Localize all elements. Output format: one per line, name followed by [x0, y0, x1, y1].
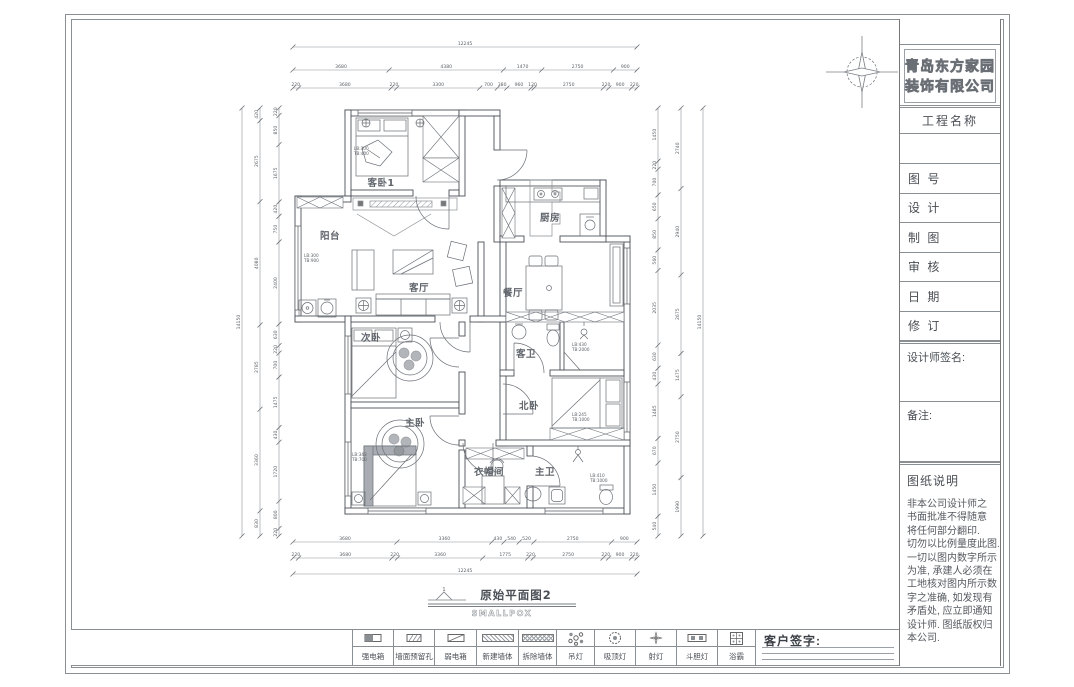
dimension-label: 2750 [562, 552, 574, 558]
room-label-north-bedroom: 北卧 [519, 400, 539, 412]
bath-heater-icon [718, 630, 755, 647]
dimension-label: 1675 [273, 167, 279, 179]
dimension-label: 220 [291, 552, 300, 558]
drawing-sheet: 客卧1 阳台 客厅 厨房 餐厅 次卧 客卫 北卧 主卧 衣帽间 主卫 LB:30… [0, 0, 1074, 687]
dimension-label: 4080 [254, 257, 260, 269]
dimension-label: 630 [273, 330, 279, 339]
legend-item-8: 斗胆灯 [676, 630, 717, 665]
legend-item-7: 射灯 [635, 630, 676, 665]
dimension-label: 2750 [567, 536, 579, 542]
legend-label: 新建墙体 [477, 647, 518, 665]
titleblock-row-1: 设 计 [900, 194, 1000, 224]
legend-item-1: 墙面预留孔 [393, 630, 434, 665]
dimension-label: 2940 [675, 226, 681, 238]
remark-label: 备注: [900, 402, 1000, 462]
dimension-label: 1450 [652, 484, 658, 496]
dimension-label: 2675 [675, 308, 681, 320]
dimension-label: 900 [621, 64, 630, 70]
titleblock-row-3: 审 核 [900, 253, 1000, 283]
dimension-label: 3360 [254, 454, 260, 466]
dimension-label: 850 [273, 126, 279, 135]
dimension-label: 220 [630, 82, 639, 88]
legend-item-0: 强电箱 [352, 630, 393, 665]
room-label-master-bath: 主卫 [535, 466, 555, 478]
legend-label: 强电箱 [353, 647, 393, 665]
annotation: TB:700 [351, 457, 367, 462]
legend: 强电箱墙面预留孔弱电箱新建墙体拆除墙体吊灯吸顶灯射灯斗胆灯浴霸 [352, 630, 755, 665]
dimension-label: 3300 [432, 82, 444, 88]
signature-line[interactable] [762, 659, 894, 660]
drawing-notes-line: 为准, 承建人必须在 [907, 565, 994, 578]
demolish-wall-icon [519, 630, 556, 647]
dimension-label: 4380 [440, 64, 452, 70]
spot-light-icon [636, 630, 676, 647]
dimension-label: 12245 [458, 568, 473, 574]
dimension-label: 700 [652, 178, 658, 187]
legend-item-4: 拆除墙体 [518, 630, 556, 665]
legend-item-9: 浴霸 [717, 630, 755, 665]
dimension-label: 520 [522, 536, 531, 542]
titleblock-row-4: 日 期 [900, 282, 1000, 312]
signature-line[interactable] [762, 647, 894, 648]
titleblock-row-0: 图 号 [900, 164, 1000, 194]
strong-electric-box-icon [353, 630, 393, 647]
dimension-label: 650 [652, 202, 658, 211]
title-block: 青岛东方家园 装饰有限公司 工程名称 图 号设 计制 图审 核日 期修 订 设计… [899, 19, 1001, 666]
dimension-label: 220 [602, 82, 611, 88]
dimension-label: 220 [630, 552, 639, 558]
room-label-second-bedroom: 次卧 [361, 332, 381, 344]
room-label-guest-bedroom1: 客卧1 [366, 177, 394, 189]
company-name-box: 青岛东方家园 装饰有限公司 [900, 44, 1000, 108]
drawing-notes-line: 非本公司设计师之 [907, 498, 994, 511]
drawing-notes-line: 切勿以比例量度此图. [907, 538, 994, 551]
dimension-label: 2750 [563, 82, 575, 88]
annotation: TB:900 [303, 258, 319, 263]
legend-label: 吊灯 [557, 647, 594, 665]
dimension-label: 2035 [652, 302, 658, 314]
dimension-label: 560 [652, 256, 658, 265]
dimension-label: 3360 [434, 552, 446, 558]
dimension-label: 220 [526, 552, 535, 558]
dimension-label: 220 [273, 107, 279, 116]
dimension-label: 670 [652, 446, 658, 455]
legend-label: 浴霸 [718, 647, 755, 665]
titleblock-row-2: 制 图 [900, 223, 1000, 253]
caption-detail-marker: 1 [442, 587, 445, 593]
legend-item-6: 吸顶灯 [594, 630, 635, 665]
legend-item-5: 吊灯 [556, 630, 594, 665]
dimension-label: 220 [273, 345, 279, 354]
dimension-label: 960 [515, 82, 524, 88]
dimension-label: 3680 [339, 552, 351, 558]
room-label-guest-bath: 客卫 [515, 348, 536, 360]
annotation: TB:1000 [589, 478, 608, 483]
dimension-label: 1990 [675, 501, 681, 513]
annotation: TB:400 [353, 151, 369, 156]
dimension-label: 700 [484, 82, 493, 88]
dimension-label: 750 [273, 225, 279, 234]
dimension-label: 1470 [517, 64, 529, 70]
dimension-label: 2740 [675, 142, 681, 154]
dimension-label: 14150 [236, 315, 242, 330]
ceiling-light-icon [595, 630, 635, 647]
dimension-label: 2400 [273, 277, 279, 289]
caption-title: 原始平面图2 [480, 588, 552, 602]
recessed-light-icon [677, 630, 717, 647]
dimension-label: 540 [652, 522, 658, 531]
dimension-label: 420 [273, 205, 279, 214]
drawing-notes-line: 工地核对图内所示数 [907, 578, 994, 591]
dimension-label: 830 [254, 519, 260, 528]
dimension-label: 420 [254, 110, 260, 119]
dimension-label: 1450 [652, 129, 658, 141]
company-name-line1: 青岛东方家园 [905, 56, 995, 76]
dimension-label: 220 [390, 552, 399, 558]
legend-item-3: 新建墙体 [476, 630, 518, 665]
dimension-label: 1485 [652, 405, 658, 417]
dimension-label: 700 [273, 361, 279, 370]
pendant-light-icon [557, 630, 594, 647]
dimension-label: 2750 [572, 64, 584, 70]
legend-label: 拆除墙体 [519, 647, 556, 665]
dimension-label: 900 [620, 536, 629, 542]
dimension-label: 1475 [273, 396, 279, 408]
room-label-cloakroom: 衣帽间 [474, 466, 504, 478]
dimension-label: 3680 [339, 536, 351, 542]
dimension-label: 3680 [339, 82, 351, 88]
room-label-master-bedroom: 主卧 [405, 417, 425, 429]
dimension-label: 2750 [675, 431, 681, 443]
legend-item-2: 弱电箱 [434, 630, 476, 665]
annotation: TB:1000 [571, 417, 590, 422]
project-name-label: 工程名称 [900, 108, 1000, 134]
customer-sign-block: 客户签字: [755, 630, 899, 665]
drawing-notes-title: 图纸说明 [907, 472, 994, 489]
dimension-label: 800 [273, 510, 279, 519]
dimension-label: 1775 [499, 552, 511, 558]
dimension-label: 630 [652, 352, 658, 361]
caption-subtitle: SMALLPOX [472, 609, 533, 618]
dimension-label: 430 [494, 536, 503, 542]
project-name-value[interactable] [900, 134, 1000, 164]
caption: 1 原始平面图2 SMALLPOX [428, 587, 576, 618]
entry-porch [530, 180, 560, 236]
drawing-notes-line: 设计师. 图纸版权归 [907, 619, 994, 632]
drawing-notes-line: 本公司. [907, 632, 994, 645]
dimension-label: 1720 [273, 466, 279, 478]
new-wall-icon [477, 630, 518, 647]
legend-label: 弱电箱 [435, 647, 476, 665]
room-label-dining: 餐厅 [502, 287, 523, 299]
room-label-living: 客厅 [408, 282, 429, 294]
beam-niche [353, 198, 457, 236]
legend-label: 斗胆灯 [677, 647, 717, 665]
annotation: TB:2000 [571, 347, 590, 352]
dimension-label: 900 [616, 552, 625, 558]
titleblock-row-5: 修 订 [900, 312, 1000, 342]
dimension-label: 540 [507, 536, 516, 542]
dimension-label: 2675 [254, 155, 260, 167]
drawing-notes-line: 字之准确, 如发现有 [907, 592, 994, 605]
drawing-notes: 图纸说明 非本公司设计师之书面批准不得随意将任何部分翻印.切勿以比例量度此图.一… [900, 462, 1000, 660]
legend-label: 吸顶灯 [595, 647, 635, 665]
dimension-label: 220 [273, 528, 279, 537]
legend-label: 射灯 [636, 647, 676, 665]
drawing-notes-line: 书面批准不得随意 [907, 511, 994, 524]
dimension-label: 220 [390, 82, 399, 88]
dimension-label: 380 [498, 82, 507, 88]
room-label-balcony: 阳台 [320, 230, 340, 242]
bottom-strip: 强电箱墙面预留孔弱电箱新建墙体拆除墙体吊灯吸顶灯射灯斗胆灯浴霸 客户签字: [71, 629, 899, 666]
dimension-label: 430 [652, 372, 658, 381]
dimension-label: 220 [652, 161, 658, 170]
dimension-label: 1475 [675, 369, 681, 381]
drawing-notes-line: 一切以图内数字所示 [907, 552, 994, 565]
dimension-label: 220 [291, 82, 300, 88]
drawing-notes-line: 将任何部分翻印. [907, 525, 994, 538]
dimension-label: 2785 [254, 361, 260, 373]
designer-signature-label: 设计师签名: [900, 341, 1000, 402]
dimension-label: 14150 [697, 315, 703, 330]
room-label-kitchen: 厨房 [540, 212, 560, 224]
wall-hole-icon [394, 630, 434, 647]
dimension-label: 12245 [458, 41, 473, 47]
company-name-line2: 装饰有限公司 [905, 76, 995, 96]
dimension-label: 430 [273, 430, 279, 439]
dimension-label: 220 [601, 552, 610, 558]
dimension-label: 3680 [335, 64, 347, 70]
dimension-label: 850 [652, 230, 658, 239]
dimension-label: 3360 [439, 536, 451, 542]
legend-label: 墙面预留孔 [394, 647, 434, 665]
weak-electric-box-icon [435, 630, 476, 647]
drawing-notes-line: 矛盾处, 应立即通知 [907, 605, 994, 618]
signature-line[interactable] [762, 653, 894, 654]
compass-icon [826, 36, 898, 108]
dimension-label: 900 [616, 82, 625, 88]
dimension-label: 120 [528, 82, 537, 88]
